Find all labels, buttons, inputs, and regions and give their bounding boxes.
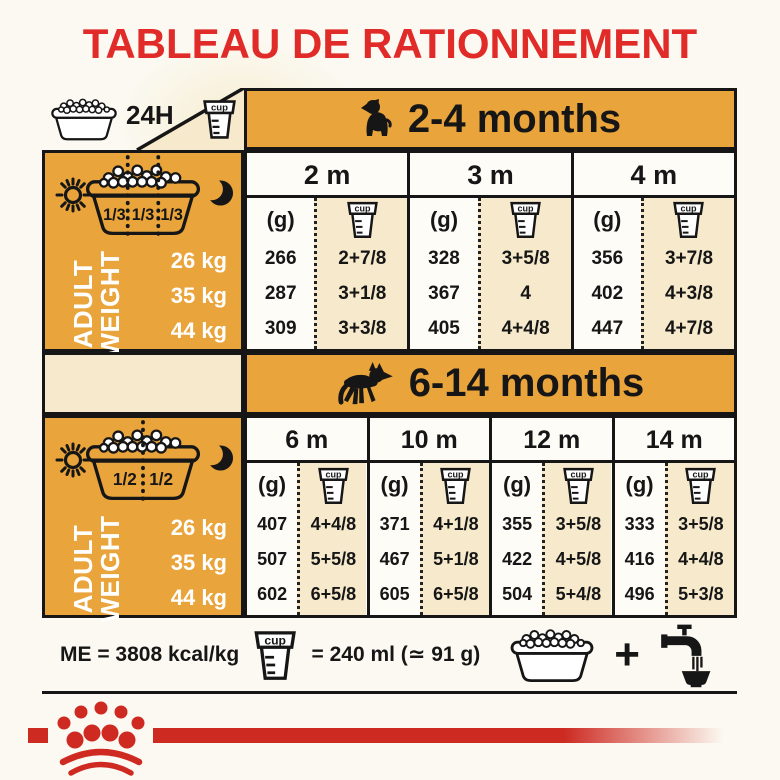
measuring-cup-icon [202, 97, 237, 141]
meal-split-panel-2: 1/2 1/2 ADULT WEIGHT 26 kg 35 kg 44 kg [42, 415, 244, 618]
grams-value: 287 [247, 276, 314, 311]
weight-list: 26 kg 35 kg 44 kg [137, 243, 227, 348]
grams-value: 402 [574, 276, 641, 311]
meal-split-panel-1: 1/3 1/3 1/3 ADULT WEIGHT 26 kg 35 kg 44 … [42, 150, 244, 352]
cups-value: 3+5/8 [481, 241, 571, 276]
measuring-cup-icon [644, 198, 734, 241]
cups-value: 3+1/8 [317, 276, 407, 311]
german-shepherd-icon [337, 362, 393, 406]
measuring-cup-icon [423, 463, 489, 507]
ration-table-6-14-months: 6 m (g) 407 507 602 4+4/8 5+5/8 6+5/8 10… [244, 415, 737, 618]
measuring-cup-icon [668, 463, 734, 507]
grams-unit-label: (g) [492, 463, 542, 507]
fraction-label: 1/2 [149, 469, 173, 489]
cup-equivalence-text: = 240 ml (≃ 91 g) [312, 642, 481, 667]
cups-value: 5+3/8 [668, 577, 734, 612]
moon-icon [207, 177, 234, 209]
cups-value: 3+5/8 [668, 507, 734, 542]
weight-value: 44 kg [137, 313, 227, 348]
cups-value: 4+4/8 [668, 542, 734, 577]
metabolizable-energy-text: ME = 3808 kcal/kg [60, 643, 239, 667]
month-header: 4 m [574, 153, 734, 198]
grams-value: 447 [574, 311, 641, 346]
cups-value: 4 [481, 276, 571, 311]
puppy-icon [360, 98, 392, 140]
month-column-12m: 12 m (g) 355 422 504 3+5/8 4+5/8 5+4/8 [492, 418, 615, 615]
month-header: 10 m [370, 418, 490, 463]
month-header: 3 m [410, 153, 570, 198]
section-title: 2-4 months [408, 97, 621, 142]
month-header: 2 m [247, 153, 407, 198]
measuring-cup-icon [300, 463, 366, 507]
cups-value: 4+4/8 [481, 311, 571, 346]
moon-icon [207, 442, 234, 474]
cups-value: 4+3/8 [644, 276, 734, 311]
grams-value: 355 [492, 507, 542, 542]
weight-value: 35 kg [137, 278, 227, 313]
grams-unit-label: (g) [615, 463, 665, 507]
adult-weight-label: ADULT WEIGHT [68, 507, 126, 631]
month-header: 14 m [615, 418, 735, 463]
grams-value: 356 [574, 241, 641, 276]
grams-value: 407 [247, 507, 297, 542]
spacer-cell [42, 352, 244, 415]
cups-value: 5+5/8 [300, 542, 366, 577]
cups-value: 2+7/8 [317, 241, 407, 276]
bowl-kibble-icon [504, 625, 600, 685]
month-header: 12 m [492, 418, 612, 463]
month-column-14m: 14 m (g) 333 416 496 3+5/8 4+4/8 5+3/8 [615, 418, 735, 615]
cups-value: 4+7/8 [644, 311, 734, 346]
weight-value: 26 kg [137, 510, 227, 545]
feeding-guide-label: TABLEAU DE RATIONNEMENT 24H 2-4 months [0, 0, 780, 780]
cups-value: 3+5/8 [545, 507, 611, 542]
grams-value: 416 [615, 542, 665, 577]
grams-value: 422 [492, 542, 542, 577]
grams-value: 605 [370, 577, 420, 612]
grams-value: 309 [247, 311, 314, 346]
section-header-6-14-months: 6-14 months [244, 352, 737, 415]
cups-value: 4+1/8 [423, 507, 489, 542]
brand-bar [153, 728, 723, 743]
measuring-cup-icon [317, 198, 407, 241]
page-title: TABLEAU DE RATIONNEMENT [0, 24, 780, 64]
grams-unit-label: (g) [247, 198, 314, 241]
cups-value: 6+5/8 [423, 577, 489, 612]
weight-value: 26 kg [137, 243, 227, 278]
cups-value: 4+4/8 [300, 507, 366, 542]
weight-value: 44 kg [137, 580, 227, 615]
grams-value: 507 [247, 542, 297, 577]
ration-table-2-4-months: 2 m (g) 266 287 309 2+7/8 3+1/8 3+3/8 3 … [244, 150, 737, 352]
grams-unit-label: (g) [370, 463, 420, 507]
grams-unit-label: (g) [247, 463, 297, 507]
brand-bar-left [28, 728, 48, 743]
grams-value: 328 [410, 241, 477, 276]
measuring-cup-icon [253, 625, 297, 685]
grams-unit-label: (g) [410, 198, 477, 241]
month-header: 6 m [247, 418, 367, 463]
grams-value: 496 [615, 577, 665, 612]
month-column-10m: 10 m (g) 371 467 605 4+1/8 5+1/8 6+5/8 [370, 418, 493, 615]
month-column-2m: 2 m (g) 266 287 309 2+7/8 3+1/8 3+3/8 [247, 153, 410, 349]
section-title: 6-14 months [409, 361, 645, 406]
month-column-3m: 3 m (g) 328 367 405 3+5/8 4 4+4/8 [410, 153, 573, 349]
measuring-cup-icon [481, 198, 571, 241]
fraction-label: 1/3 [132, 206, 155, 224]
bowl-thirds-icon: 1/3 1/3 1/3 [80, 155, 206, 243]
grams-value: 371 [370, 507, 420, 542]
grams-value: 504 [492, 577, 542, 612]
crown-logo [50, 698, 152, 778]
weight-list: 26 kg 35 kg 44 kg [137, 510, 227, 615]
grams-value: 467 [370, 542, 420, 577]
bowl-kibble-icon [46, 96, 122, 142]
grams-value: 602 [247, 577, 297, 612]
grams-value: 405 [410, 311, 477, 346]
plus-sign: + [614, 633, 640, 677]
month-column-4m: 4 m (g) 356 402 447 3+7/8 4+3/8 4+7/8 [574, 153, 734, 349]
section-header-2-4-months: 2-4 months [244, 88, 737, 150]
cups-value: 3+3/8 [317, 311, 407, 346]
24h-label: 24H [126, 100, 174, 131]
cups-value: 4+5/8 [545, 542, 611, 577]
weight-value: 35 kg [137, 545, 227, 580]
faucet-icon [654, 621, 713, 689]
grams-value: 367 [410, 276, 477, 311]
fraction-label: 1/3 [103, 206, 126, 224]
daily-ration-cell: 24H [42, 88, 244, 150]
footer-legend: ME = 3808 kcal/kg = 240 ml (≃ 91 g) + [42, 618, 737, 694]
cups-value: 5+1/8 [423, 542, 489, 577]
grams-value: 333 [615, 507, 665, 542]
cups-value: 6+5/8 [300, 577, 366, 612]
adult-weight-label: ADULT WEIGHT [68, 242, 126, 366]
grams-unit-label: (g) [574, 198, 641, 241]
measuring-cup-icon [545, 463, 611, 507]
month-column-6m: 6 m (g) 407 507 602 4+4/8 5+5/8 6+5/8 [247, 418, 370, 615]
grams-value: 266 [247, 241, 314, 276]
cups-value: 5+4/8 [545, 577, 611, 612]
fraction-label: 1/2 [113, 469, 137, 489]
cups-value: 3+7/8 [644, 241, 734, 276]
fraction-label: 1/3 [160, 206, 183, 224]
bowl-halves-icon: 1/2 1/2 [80, 420, 206, 508]
